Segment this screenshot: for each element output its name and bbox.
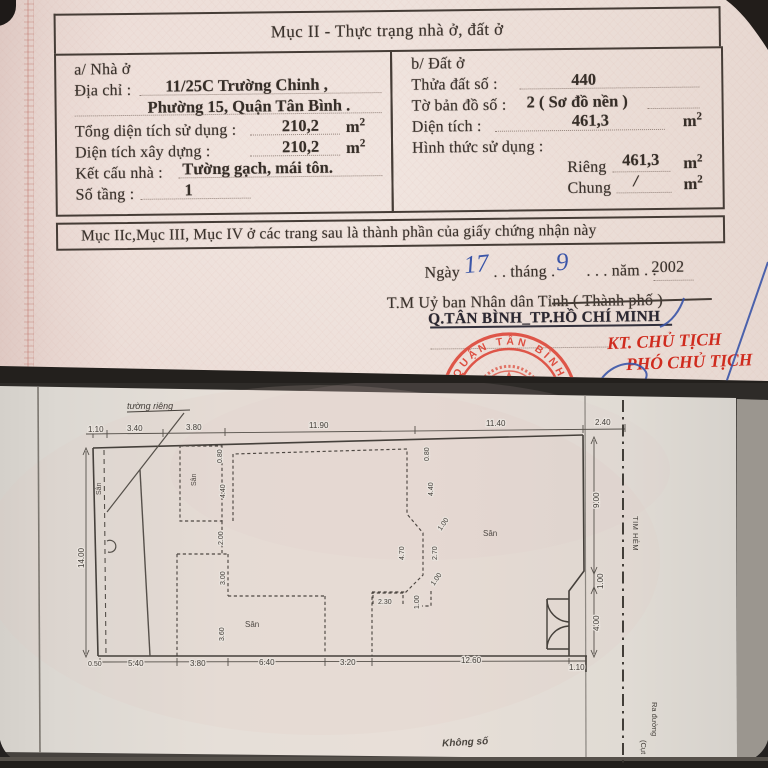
svg-text:9.00: 9.00 xyxy=(592,492,601,508)
svg-text:Sân: Sân xyxy=(245,620,259,629)
svg-text:2.00: 2.00 xyxy=(218,531,225,545)
svg-text:Ra đường: Ra đường xyxy=(650,702,659,736)
svg-text:4.00: 4.00 xyxy=(592,615,601,631)
svg-text:3.40: 3.40 xyxy=(127,424,143,433)
svg-text:1.10: 1.10 xyxy=(88,425,104,434)
svg-text:(Cụt: (Cụt xyxy=(639,740,648,755)
svg-text:Sân: Sân xyxy=(191,473,198,486)
svg-text:3.60: 3.60 xyxy=(219,627,226,641)
svg-text:2.30: 2.30 xyxy=(378,599,392,606)
svg-text:0.80: 0.80 xyxy=(424,447,431,461)
svg-text:3.80: 3.80 xyxy=(186,423,202,432)
svg-text:14.00: 14.00 xyxy=(77,547,86,568)
svg-text:3.00: 3.00 xyxy=(220,571,227,585)
svg-text:0.80: 0.80 xyxy=(217,449,224,463)
svg-text:TIM HẺM: TIM HẺM xyxy=(631,516,640,551)
svg-text:1.10: 1.10 xyxy=(569,663,585,672)
svg-text:Không số: Không số xyxy=(442,735,490,749)
svg-text:4.40: 4.40 xyxy=(428,482,435,496)
svg-text:3.20: 3.20 xyxy=(340,658,356,667)
svg-text:12.60: 12.60 xyxy=(461,656,482,665)
svg-text:Sân: Sân xyxy=(483,529,497,538)
svg-text:6.40: 6.40 xyxy=(259,658,275,667)
svg-text:Sân: Sân xyxy=(96,482,103,495)
svg-text:0.50: 0.50 xyxy=(88,661,102,668)
svg-text:1.00: 1.00 xyxy=(414,595,421,609)
svg-text:1.00: 1.00 xyxy=(596,573,605,589)
svg-text:4.70: 4.70 xyxy=(399,546,406,560)
svg-text:5.40: 5.40 xyxy=(128,659,144,668)
svg-text:11.40: 11.40 xyxy=(486,419,506,428)
svg-text:2.40: 2.40 xyxy=(595,418,611,427)
svg-text:tường riêng: tường riêng xyxy=(127,401,173,411)
svg-text:4.40: 4.40 xyxy=(220,484,227,498)
svg-text:11.90: 11.90 xyxy=(309,421,329,430)
svg-text:2.70: 2.70 xyxy=(432,546,439,560)
svg-text:QUẬN TÂN BÌNH T: QUẬN TÂN BÌNH T xyxy=(0,0,570,383)
svg-text:3.80: 3.80 xyxy=(190,659,206,668)
